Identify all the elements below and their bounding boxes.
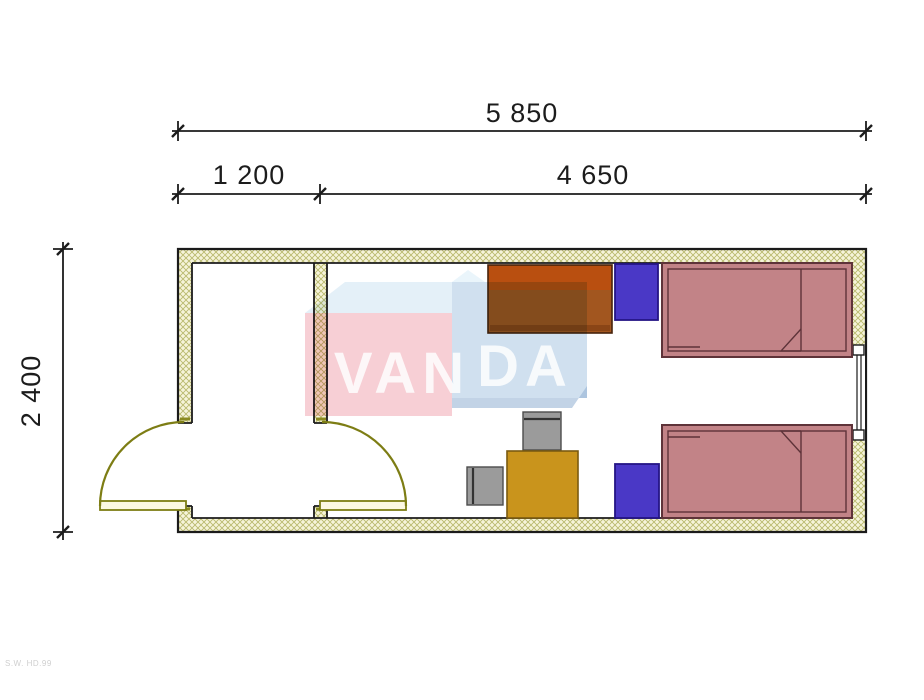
table bbox=[507, 451, 578, 518]
drawing-id-note: S.W. HD.99 bbox=[5, 659, 52, 668]
doors bbox=[100, 422, 406, 510]
chair-top bbox=[523, 412, 561, 450]
wall-bottom bbox=[178, 518, 866, 532]
wardrobe-top bbox=[615, 264, 658, 320]
dimension-label-entry: 1 200 bbox=[213, 160, 286, 190]
dimension-split-width: 1 200 4 650 bbox=[172, 160, 872, 204]
wall-left bbox=[178, 263, 192, 423]
floor-plan-page: 5 850 1 200 4 650 2 400 bbox=[0, 0, 924, 700]
entrance-door-swing-arc bbox=[100, 422, 184, 506]
interior-door-swing-arc bbox=[322, 422, 406, 506]
wall-right-upper bbox=[852, 263, 866, 345]
window-right bbox=[852, 345, 865, 440]
interior-door-leaf bbox=[320, 501, 406, 510]
dimension-label-main: 4 650 bbox=[557, 160, 630, 190]
dimension-label-total: 5 850 bbox=[486, 98, 559, 128]
window-frame-top-block bbox=[853, 345, 864, 355]
watermark-text-left: VAN bbox=[334, 341, 470, 406]
dimension-total-width: 5 850 bbox=[172, 98, 872, 141]
wardrobe-bottom bbox=[615, 464, 659, 518]
watermark-peak bbox=[452, 270, 485, 282]
chair-left bbox=[467, 467, 503, 505]
dimension-depth: 2 400 bbox=[16, 242, 73, 540]
floor-plan-drawing: 5 850 1 200 4 650 2 400 bbox=[0, 0, 924, 700]
watermark-text-right: DA bbox=[477, 334, 573, 399]
wall-right-lower bbox=[852, 440, 866, 518]
wall-top bbox=[178, 249, 866, 263]
entrance-door-leaf bbox=[100, 501, 186, 510]
watermark: VAN DA bbox=[305, 270, 587, 416]
dimension-label-depth: 2 400 bbox=[16, 355, 46, 428]
bed-bottom bbox=[662, 425, 852, 518]
bed-top bbox=[662, 263, 852, 357]
window-frame-bottom-block bbox=[853, 430, 864, 440]
